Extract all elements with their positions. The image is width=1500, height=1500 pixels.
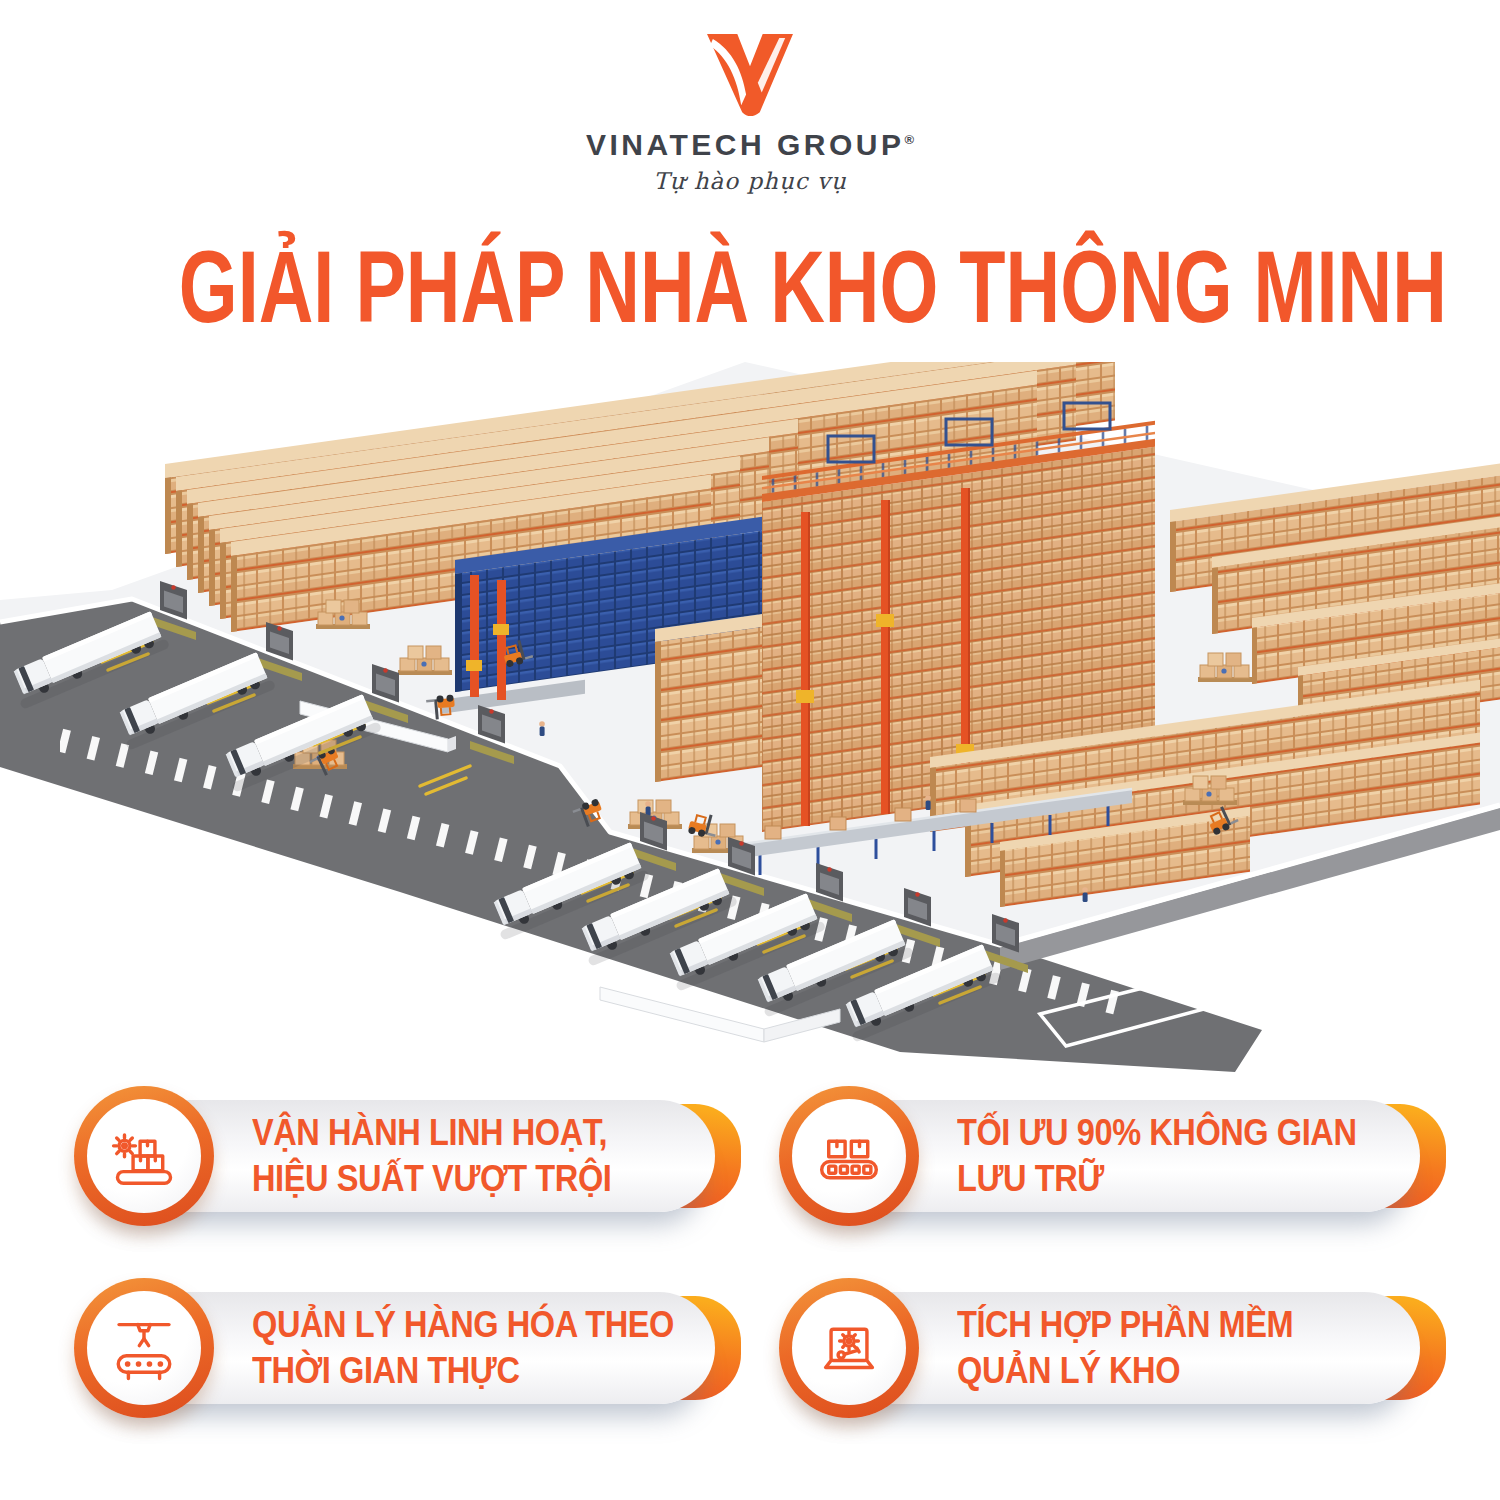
feature-icon-badge (779, 1278, 919, 1418)
feature-label: VẬN HÀNH LINH HOẠT, HIỆU SUẤT VƯỢT TRỘI (252, 1110, 685, 1202)
mid-rack-block (655, 614, 765, 782)
feature-icon-badge (779, 1086, 919, 1226)
feature-icon-badge (74, 1278, 214, 1418)
brand-name: VINATECH GROUP® (0, 128, 1500, 162)
vinatech-v-logo-icon (701, 34, 799, 118)
laptop-gear-wrench-icon (810, 1309, 888, 1387)
features-grid: VẬN HÀNH LINH HOẠT, HIỆU SUẤT VƯỢT TRỘI (0, 1100, 1500, 1404)
feature-card-space-optimization: TỐI ƯU 90% KHÔNG GIAN LƯU TRỮ (785, 1100, 1420, 1212)
feature-icon-badge (74, 1086, 214, 1226)
feature-card-wms-software: TÍCH HỢP PHẦN MỀM QUẢN LÝ KHO (785, 1292, 1420, 1404)
boxes-roller-conveyor-icon (810, 1117, 888, 1195)
feature-icon-circle (792, 1099, 906, 1213)
warehouse-illustration (0, 362, 1500, 1072)
feature-icon-circle (87, 1099, 201, 1213)
gear-boxes-conveyor-icon (105, 1117, 183, 1195)
feature-icon-circle (792, 1291, 906, 1405)
registered-mark: ® (904, 132, 914, 147)
feature-card-realtime-tracking: QUẢN LÝ HÀNG HÓA THEO THỜI GIAN THỰC (80, 1292, 715, 1404)
feature-card-flexible-operation: VẬN HÀNH LINH HOẠT, HIỆU SUẤT VƯỢT TRỘI (80, 1100, 715, 1212)
feature-label: QUẢN LÝ HÀNG HÓA THEO THỜI GIAN THỰC (252, 1302, 685, 1394)
robotic-arm-conveyor-icon (105, 1309, 183, 1387)
brand-tagline: Tự hào phục vụ (0, 168, 1500, 194)
poster-page: VINATECH GROUP® Tự hào phục vụ GIẢI PHÁP… (0, 0, 1500, 1500)
feature-icon-circle (87, 1291, 201, 1405)
feature-label: TỐI ƯU 90% KHÔNG GIAN LƯU TRỮ (957, 1110, 1390, 1202)
feature-label: TÍCH HỢP PHẦN MỀM QUẢN LÝ KHO (957, 1302, 1390, 1394)
page-title: GIẢI PHÁP NHÀ KHO THÔNG MINH (0, 228, 1500, 340)
brand-logo-block: VINATECH GROUP® Tự hào phục vụ (0, 34, 1500, 194)
